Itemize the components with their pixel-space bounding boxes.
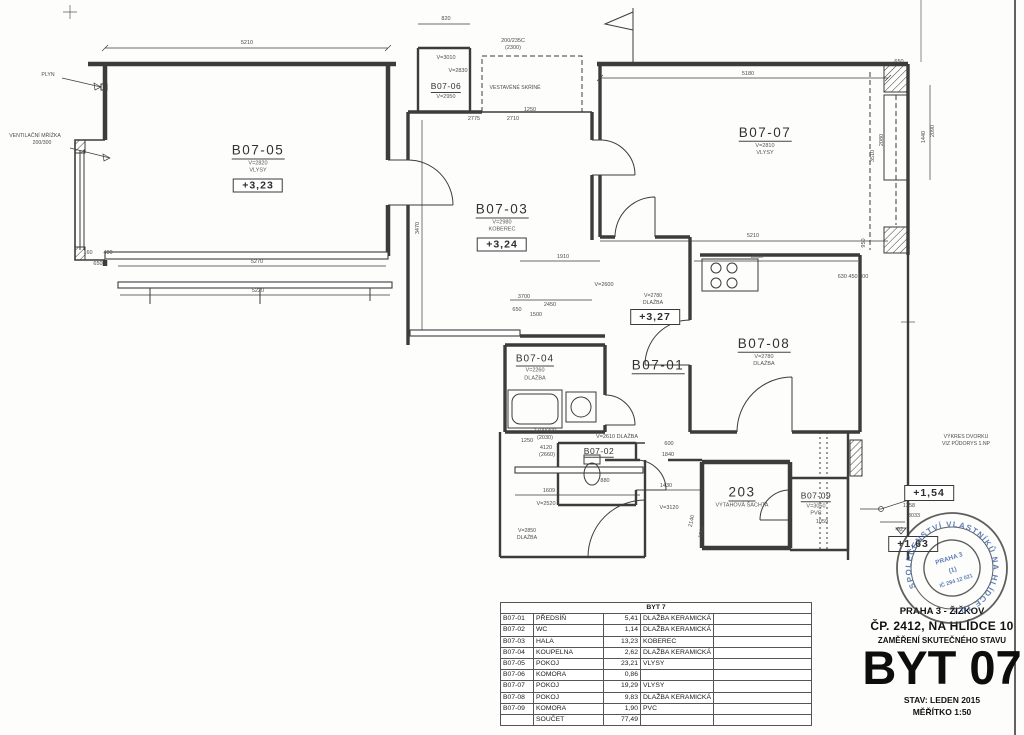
table-cell: PŘEDSÍŇ (534, 614, 604, 625)
dimension-label: 160 (83, 250, 92, 256)
table-row: B07-04KOUPELNA2,62DLAŽBA KERAMICKÁ (501, 647, 812, 658)
room-label: B07-05 (232, 144, 285, 160)
table-cell: KOBEREC (641, 636, 714, 647)
table-cell: B07-08 (501, 692, 534, 703)
room-label: B07-03 (476, 203, 529, 219)
table-cell (501, 714, 534, 725)
table-header-row: BYT 7 (501, 603, 812, 614)
room-label: B07-04 (516, 355, 554, 367)
room-b07-01: B07-01 (632, 358, 685, 374)
room-b07-08: B07-08 V=2780 DLAŽBA (738, 337, 791, 368)
dimension-label: 2450 (544, 302, 556, 308)
courtyard-note-2: VIZ PŮDORYS 1.NP (942, 441, 990, 447)
dimension-label: V=2520 (536, 501, 555, 507)
table-cell: DLAŽBA KERAMICKÁ (641, 647, 714, 658)
room-height: V=2780 (754, 354, 773, 360)
room-label: B07-02 (584, 447, 614, 458)
dimension-label: 3033 (908, 513, 920, 519)
room-floor: VLYSY (249, 169, 266, 175)
table-cell: WC (534, 625, 604, 636)
room-height: V=2820 (248, 161, 267, 167)
dimension-label: (2300) (505, 45, 521, 51)
table-row: B07-06KOMORA0,86 (501, 670, 812, 681)
dimension-label: 1250 (524, 107, 536, 113)
table-cell: 77,49 (604, 714, 641, 725)
dimension-label: 950 (861, 238, 867, 247)
table-cell: VLYSY (641, 681, 714, 692)
room-label: B07-09 (801, 491, 831, 502)
table-cell (714, 670, 812, 681)
room-b07-05: B07-05 V=2820 VLYSY +3,23 (232, 144, 285, 193)
table-cell: KOUPELNA (534, 647, 604, 658)
table-cell: 13,23 (604, 636, 641, 647)
dimension-label: 2775 (468, 116, 480, 122)
room-b07-02: B07-02 (584, 447, 614, 458)
dimension-label: 1430 (660, 483, 672, 489)
dimension-label: 2700/300 (534, 428, 557, 434)
table-row: B07-03HALA13,23KOBEREC (501, 636, 812, 647)
dimension-label: 5210 (241, 40, 253, 46)
dimension-label: 5270 (251, 259, 263, 265)
room-floor: PVC (810, 511, 821, 517)
dimension-label: V=3010 (436, 55, 455, 61)
elevation-mark: +3,23 (233, 178, 283, 193)
dimension-label: 4120 (540, 445, 552, 451)
dimension-label: 3510 (870, 150, 876, 162)
room-label: B07-07 (739, 126, 792, 142)
room-b07-03: B07-03 V=2980 KOBEREC +3,24 (476, 203, 529, 252)
dimension-label: 1440 (921, 131, 927, 143)
dimension-label: 1500 (530, 312, 542, 318)
table-cell: B07-05 (501, 658, 534, 669)
dimension-label: 5220 (252, 288, 264, 294)
table-cell (714, 647, 812, 658)
room-label: 203 (728, 486, 755, 502)
table-cell: B07-07 (501, 681, 534, 692)
table-cell: 19,29 (604, 681, 641, 692)
table-cell (714, 625, 812, 636)
table-cell (714, 636, 812, 647)
room-height: V=3050 (806, 504, 825, 510)
dimension-label: 1258 (903, 503, 915, 509)
status-date: STAV: LEDEN 2015 (860, 695, 1024, 705)
table-cell: KOMORA (534, 703, 604, 714)
dimension-label: V=2830 (448, 68, 467, 74)
room-floor: KOBEREC (489, 228, 516, 234)
dimension-label: V=3120 (659, 505, 678, 511)
table-cell: 0,86 (604, 670, 641, 681)
table-cell (714, 614, 812, 625)
dimension-label: 2080 (879, 134, 885, 146)
table-cell: DLAŽBA KERAMICKÁ (641, 625, 714, 636)
table-cell: 1,90 (604, 703, 641, 714)
dimension-label: 1059 (816, 519, 828, 525)
table-cell: DLAŽBA KERAMICKÁ (641, 614, 714, 625)
table-cell: POKOJ (534, 658, 604, 669)
table-row: B07-07POKOJ19,29VLYSY (501, 681, 812, 692)
table-cell: 1,14 (604, 625, 641, 636)
elevation-327: +3,27 (630, 309, 680, 325)
room-203-shaft: 203 VÝTAHOVÁ ŠACHTA (716, 486, 769, 509)
room-label: B07-01 (632, 358, 685, 374)
table-title: BYT 7 (501, 603, 812, 614)
room-b07-07: B07-07 V=2810 VLYSY (739, 126, 792, 157)
dimension-label: 880 (600, 478, 609, 484)
table-cell (641, 670, 714, 681)
table-row: B07-05POKOJ23,21VLYSY (501, 658, 812, 669)
locality: PRAHA 3 - ŽIŽKOV (860, 606, 1024, 617)
dimension-label: 1609 (543, 488, 555, 494)
room-height: V=2810 (755, 143, 774, 149)
elevation-163: +1,63 (888, 536, 938, 552)
elevation-154: +1,54 (904, 485, 954, 501)
room-b07-09: B07-09 V=3050 PVC (801, 491, 831, 517)
dimension-label: 1250 (521, 438, 533, 444)
room-floor: DLAŽBA (753, 362, 774, 368)
dimension-label: 2710 (507, 116, 519, 122)
table-cell (714, 658, 812, 669)
title-block: PRAHA 3 - ŽIŽKOV ČP. 2412, NA HLÍDCE 10 … (860, 606, 1024, 717)
table-cell: 9,83 (604, 692, 641, 703)
room-height: V=2950 (436, 95, 455, 101)
dimension-label: (2660) (539, 452, 555, 458)
table-cell: B07-03 (501, 636, 534, 647)
table-cell: DLAŽBA KERAMICKÁ (641, 692, 714, 703)
table-cell: 2,62 (604, 647, 641, 658)
dimension-label: 650 (894, 59, 903, 65)
dimension-label: (2030) (537, 435, 553, 441)
room-height: V=2980 (492, 220, 511, 226)
elevation-mark: +3,24 (477, 237, 527, 252)
dimension-label: 5210 (747, 233, 759, 239)
dimension-label: 5180 (742, 71, 754, 77)
dimension-label: 3630 (751, 254, 763, 260)
table-cell: B07-06 (501, 670, 534, 681)
dimension-label: 600 (664, 441, 673, 447)
table-cell (714, 681, 812, 692)
table-row: SOUČET77,49 (501, 714, 812, 725)
table-cell: PVC (641, 703, 714, 714)
dimension-label: V=2600 (594, 282, 613, 288)
dimension-label: V=2610 DLAŽBA (596, 434, 638, 440)
floor-note-2: DLAŽBA (517, 535, 537, 541)
table-cell: 23,21 (604, 658, 641, 669)
room-floor: DLAŽBA (524, 376, 545, 382)
dimension-label: 650 (93, 261, 102, 267)
dimension-label: 200/235C (501, 38, 525, 44)
table-cell: B07-02 (501, 625, 534, 636)
dimension-label: 820 (441, 16, 450, 22)
table-cell: POKOJ (534, 692, 604, 703)
table-row: B07-09KOMORA1,90PVC (501, 703, 812, 714)
floor-note: DLAŽBA (643, 300, 663, 306)
dimension-label: 650 (512, 307, 521, 313)
scale: MĚŘÍTKO 1:50 (860, 707, 1024, 717)
dimension-label: 1840 (662, 452, 674, 458)
dimension-label: 630 450 800 (838, 274, 869, 280)
north-arrow-icon (605, 8, 633, 62)
table-cell (714, 703, 812, 714)
floor-plan-sheet: B07-05 V=2820 VLYSY +3,23 B07-03 V=2980 … (0, 0, 1024, 735)
room-label: B07-08 (738, 337, 791, 353)
room-b07-04: B07-04 V=2260 DLAŽBA (516, 355, 554, 382)
dimension-label: 2090 (930, 125, 936, 137)
dimension-lines (62, 24, 930, 534)
table-cell (641, 714, 714, 725)
wardrobe-note: VESTAVĚNÉ SKŘÍNĚ (489, 85, 540, 91)
table-cell (714, 714, 812, 725)
unit-title: BYT 07 (860, 646, 1024, 691)
table-row: B07-08POKOJ9,83DLAŽBA KERAMICKÁ (501, 692, 812, 703)
table-cell: HALA (534, 636, 604, 647)
room-floor: VLYSY (756, 151, 773, 157)
table-cell (714, 692, 812, 703)
courtyard-note-1: VÝKRES DVORKU (944, 434, 989, 440)
room-height: V=2260 (525, 369, 544, 375)
height-note-2: V=2850 (518, 528, 536, 534)
dimension-label: 480 (103, 250, 112, 256)
room-legend-table: BYT 7 B07-01PŘEDSÍŇ5,41DLAŽBA KERAMICKÁB… (500, 602, 812, 726)
address: ČP. 2412, NA HLÍDCE 10 (860, 619, 1024, 633)
table-cell: B07-01 (501, 614, 534, 625)
dimension-label: 3470 (415, 222, 421, 234)
vent-grille-note: VENTILAČNÍ MŘÍŽKA (9, 133, 61, 139)
room-b07-06: B07-06 V=2950 (431, 82, 461, 100)
table-cell: 5,41 (604, 614, 641, 625)
table-cell: SOUČET (534, 714, 604, 725)
table-row: B07-02WC1,14DLAŽBA KERAMICKÁ (501, 625, 812, 636)
table-row: B07-01PŘEDSÍŇ5,41DLAŽBA KERAMICKÁ (501, 614, 812, 625)
height-note: V=2780 (644, 293, 662, 299)
dimension-label: -92 (895, 527, 903, 533)
dimension-label: 1910 (557, 254, 569, 260)
room-label: B07-06 (431, 82, 461, 93)
dimension-label: 3700 (518, 294, 530, 300)
table-cell: POKOJ (534, 681, 604, 692)
room-name: VÝTAHOVÁ ŠACHTA (716, 503, 769, 509)
table-cell: KOMORA (534, 670, 604, 681)
gas-note: PLYN (41, 72, 54, 78)
table-cell: VLYSY (641, 658, 714, 669)
table-cell: B07-09 (501, 703, 534, 714)
vent-grille-size: 200/300 (33, 140, 52, 146)
table-cell: B07-04 (501, 647, 534, 658)
